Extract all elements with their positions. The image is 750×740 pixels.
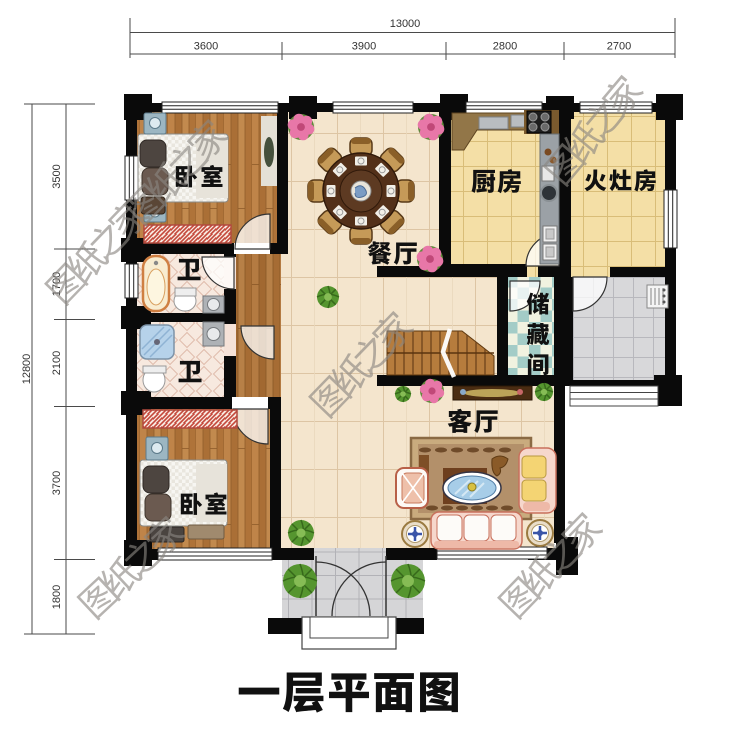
svg-text:3500: 3500 [51,164,63,188]
svg-text:3600: 3600 [194,40,218,52]
svg-text:2100: 2100 [51,351,63,375]
svg-text:13000: 13000 [390,18,421,30]
svg-text:12800: 12800 [21,354,33,385]
svg-text:2800: 2800 [493,40,517,52]
svg-text:3900: 3900 [352,40,376,52]
svg-text:1800: 1800 [51,585,63,609]
svg-text:2700: 2700 [607,40,631,52]
svg-text:3700: 3700 [51,471,63,495]
